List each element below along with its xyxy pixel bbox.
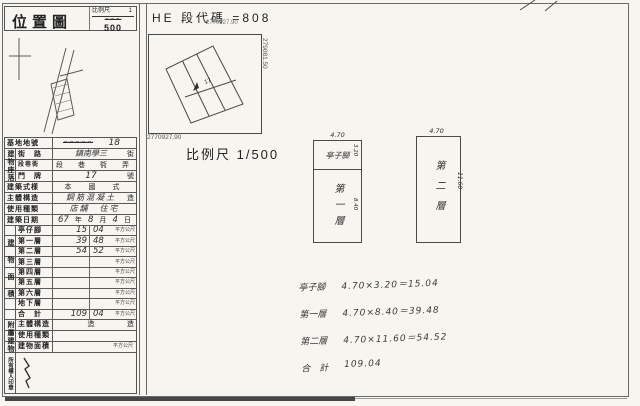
survey-form-table: 建物座落 建物面積 附屬建物 所有權人印章 基地地號 〜〜〜〜〜 18 街 路 …	[4, 137, 137, 394]
area-row-label: 地下層	[16, 299, 53, 308]
area-unit: 平方公尺	[109, 312, 136, 317]
coordinate-overlap-top: 2770927.90	[206, 20, 238, 26]
calc-label: 亭子腳	[298, 280, 325, 294]
area-value-decimal: 52	[89, 247, 109, 256]
calc-formula: 4.70×11.60＝54.52	[343, 329, 448, 346]
scanned-survey-document: 位置圖 比例尺 1 〜〜〜 500 建物座落 建物面積	[0, 0, 640, 406]
plan2-floor-name: 第二層	[431, 160, 446, 220]
annex-area-unit: 平方公尺	[107, 344, 134, 349]
parcel-map-drawing: 17	[149, 35, 259, 131]
site-lot-crossed-value: 〜〜〜〜〜	[63, 140, 93, 146]
coordinate-bottom: 2770927.90	[147, 134, 181, 141]
group-label-building-area: 建物面積	[5, 226, 16, 320]
area-value-integer: 54	[67, 247, 89, 256]
map-scale-text: 比例尺 1/500	[186, 144, 279, 163]
annex-structure-label: 主體構造	[16, 320, 53, 330]
bottom-thin-rule	[355, 398, 627, 399]
area-value-decimal	[89, 289, 109, 298]
annex-usage-label: 使用種類	[16, 331, 53, 341]
scale-fraction-block: 比例尺 1 〜〜〜 500	[89, 7, 136, 30]
area-value-decimal: 04	[89, 310, 109, 319]
area-row-label: 第二層	[16, 247, 53, 256]
annex-structure-mid: 造	[88, 321, 95, 328]
main-structure-suffix: 造	[127, 195, 134, 202]
main-structure-label: 主體構造	[5, 193, 53, 203]
area-row-label: 合 計	[16, 310, 53, 319]
area-value-decimal	[89, 278, 109, 287]
calc-formula: 109.04	[344, 359, 382, 370]
area-unit: 平方公尺	[109, 280, 136, 285]
road-line-1	[44, 48, 66, 132]
area-value-decimal	[89, 268, 109, 277]
usage-type-label: 使用種類	[5, 204, 53, 214]
area-row: 第三層平方公尺	[5, 257, 136, 267]
area-value-integer: 109	[67, 310, 89, 319]
area-row-label: 第四層	[16, 268, 53, 277]
area-unit: 平方公尺	[109, 270, 136, 275]
area-row: 第一層3948平方公尺	[5, 236, 136, 246]
column-divider-left	[139, 3, 140, 395]
annex-area-label: 建物面積	[16, 342, 53, 352]
area-value-decimal	[89, 299, 109, 308]
area-value-decimal: 04	[89, 226, 109, 235]
cadastral-map-box: 17	[148, 34, 262, 134]
door-number-value: 17	[55, 172, 127, 181]
seal-handwritten-mark	[18, 354, 40, 392]
calc-line: 合 計109.04	[301, 356, 449, 388]
street-suffix: 街	[127, 151, 134, 158]
area-row-label: 第三層	[16, 257, 53, 266]
plan1-floor-name: 第一層	[330, 183, 345, 231]
road-line-2	[52, 50, 74, 134]
calc-formula: 4.70×3.20＝15.04	[341, 276, 439, 292]
area-unit: 平方公尺	[109, 228, 136, 233]
parcel-number-text: 17	[204, 78, 213, 86]
site-lot-label: 基地地號	[5, 138, 53, 148]
handwritten-calculations: 亭子腳4.70×3.20＝15.04第一層4.70×8.40＝39.48第二層4…	[298, 275, 449, 388]
usage-type-value: 店舖 住宅	[55, 205, 134, 213]
area-row: 第六層平方公尺	[5, 289, 136, 299]
area-row-label: 亭仔腳	[16, 226, 53, 235]
row-door-number: 門 牌 17 號	[5, 171, 136, 182]
row-build-date: 建築日期 67 年 8 月 4 日	[5, 215, 136, 226]
group-label-owner-seal: 所有權人印章	[5, 353, 16, 394]
row-site-lot: 基地地號 〜〜〜〜〜 18	[5, 138, 136, 149]
title-block: 位置圖 比例尺 1 〜〜〜 500	[4, 6, 137, 31]
group-label-annex-building: 附屬建物	[5, 320, 16, 353]
building-style-value: 本 國 式	[55, 184, 134, 191]
area-row: 第二層5452平方公尺	[5, 247, 136, 257]
scale-label: 比例尺	[92, 8, 110, 15]
build-date-label: 建築日期	[5, 215, 53, 225]
door-number-label: 門 牌	[16, 171, 53, 181]
row-street: 街 路 鎮南學三 街	[5, 149, 136, 160]
area-value-decimal: 48	[89, 236, 109, 245]
door-number-suffix: 號	[127, 173, 134, 180]
area-row: 第五層平方公尺	[5, 278, 136, 288]
area-row-label: 第六層	[16, 289, 53, 298]
page-title: 位置圖	[5, 7, 89, 30]
building-style-label: 建築式樣	[5, 182, 53, 192]
site-lot-value: 18	[109, 139, 120, 148]
calc-formula: 4.70×8.40＝39.48	[342, 303, 440, 319]
section-lane-units: 段 巷 衖 弄	[55, 162, 134, 169]
street-label: 街 路	[16, 149, 53, 159]
row-annex-structure: 主體構造 造 造	[5, 320, 136, 331]
area-row: 亭仔腳1504平方公尺	[5, 226, 136, 236]
street-value: 鎮南學三	[55, 150, 127, 158]
coordinate-right-vertical: 279081.50	[261, 38, 268, 69]
bottom-heavy-rule	[5, 397, 355, 401]
area-row-label: 第一層	[16, 236, 53, 245]
column-divider-right	[146, 3, 147, 395]
build-date-year-unit: 年	[75, 217, 82, 224]
area-row: 地下層平方公尺	[5, 299, 136, 309]
plan1-arcade-height: 3.20	[352, 144, 358, 156]
section-lane-label: 段巷衖	[16, 160, 53, 170]
row-annex-usage: 使用種類	[5, 331, 136, 342]
area-unit: 平方公尺	[109, 291, 136, 296]
area-row: 合 計10904平方公尺	[5, 310, 136, 320]
area-value-integer: 39	[67, 237, 89, 246]
plan2-height-dimension: 11.60	[456, 172, 463, 189]
area-value-integer: 15	[67, 226, 89, 235]
building-area-rows: 亭仔腳1504平方公尺第一層3948平方公尺第二層5452平方公尺第三層平方公尺…	[5, 226, 136, 320]
row-section-lane: 段巷衖 段 巷 衖 弄	[5, 160, 136, 171]
annex-structure-right: 造	[127, 321, 134, 328]
plan1-width-dimension: 4.70	[313, 131, 362, 139]
parcel-outline	[51, 79, 74, 120]
plan1-arcade-label: 亭子腳	[326, 150, 350, 161]
row-main-structure: 主體構造 鋼筋混凝土 造	[5, 193, 136, 204]
area-unit: 平方公尺	[109, 260, 136, 265]
plan1-height-dimension: 8.40	[352, 198, 358, 210]
plan-second-floor: 第二層	[416, 136, 461, 243]
area-value-decimal	[89, 257, 109, 266]
main-structure-value: 鋼筋混凝土	[55, 194, 127, 202]
row-usage-type: 使用種類 店舖 住宅	[5, 204, 136, 215]
build-date-day-unit: 日	[124, 217, 131, 224]
row-annex-area: 建物面積 平方公尺	[5, 342, 136, 353]
plan2-width-dimension: 4.70	[414, 127, 459, 135]
top-handwritten-strokes	[515, 0, 567, 12]
area-unit: 平方公尺	[109, 249, 136, 254]
group-label-building-location: 建物座落	[5, 149, 16, 182]
location-sketch	[4, 32, 137, 135]
calc-label: 合 計	[301, 361, 328, 375]
build-date-month: 8	[88, 216, 93, 225]
build-date-year: 67	[58, 216, 69, 225]
build-date-month-unit: 月	[99, 217, 106, 224]
area-unit: 平方公尺	[109, 239, 136, 244]
scale-numerator: 1	[129, 8, 132, 15]
plan-first-floor: 亭子腳 3.20 第一層 8.40	[313, 140, 362, 243]
build-date-day: 4	[112, 216, 117, 225]
area-row: 第四層平方公尺	[5, 268, 136, 278]
calc-label: 第一層	[299, 307, 326, 321]
row-building-style: 建築式樣 本 國 式	[5, 182, 136, 193]
row-owner-seal	[5, 353, 136, 394]
cross-street-line	[60, 70, 83, 76]
area-unit: 平方公尺	[109, 301, 136, 306]
area-row-label: 第五層	[16, 278, 53, 287]
calc-label: 第二層	[300, 334, 327, 348]
